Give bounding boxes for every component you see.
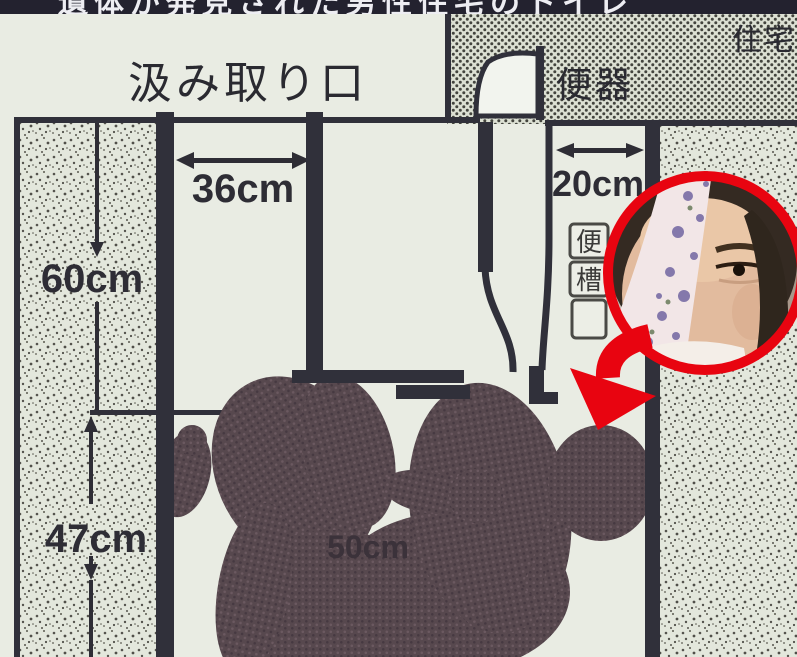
residence-label: 住宅 xyxy=(732,24,796,57)
ground-line-right xyxy=(545,120,797,126)
dimension-opening-width: 36cm xyxy=(192,167,294,211)
dimension-body-span: 50cm xyxy=(327,529,409,565)
dimension-rear-gap: 20cm xyxy=(552,163,644,204)
headline-banner: 遺体が発見された男性住宅のトイレ xyxy=(0,0,797,14)
newspaper-diagram-meme: 遺体が発見された男性住宅のトイレ xyxy=(0,0,797,657)
tank-label-char-2: 槽 xyxy=(576,265,602,295)
ground-line-left xyxy=(16,117,480,123)
pipe-outlet-flange xyxy=(396,385,470,399)
left-border-line xyxy=(14,117,20,657)
wall-left-of-pit xyxy=(156,112,174,657)
wall-right-of-pit xyxy=(306,112,323,374)
dimension-upper-depth: 60cm xyxy=(41,257,143,301)
toilet-cross-section-diagram: 50cm 便 槽 汲み取り口 便器 xyxy=(0,0,797,657)
toilet-bowl-shape xyxy=(476,53,538,116)
headline-text: 遺体が発見された男性住宅のトイレ xyxy=(58,0,634,14)
pump-out-opening-label: 汲み取り口 xyxy=(128,59,368,108)
tank-label-boxes: 便 槽 xyxy=(570,224,608,338)
house-wall-line xyxy=(445,10,451,122)
tank-label-char-1: 便 xyxy=(576,227,602,257)
toilet-bowl-label: 便器 xyxy=(556,64,634,105)
tank-ceiling-slab xyxy=(292,370,464,383)
dimension-lower-depth: 47cm xyxy=(45,517,147,561)
left-soil-texture xyxy=(20,120,158,657)
wall-under-bowl xyxy=(478,122,493,272)
silhouette-hand xyxy=(449,469,503,523)
toilet-bowl-back-line xyxy=(536,46,544,120)
silhouette-head xyxy=(548,425,654,541)
